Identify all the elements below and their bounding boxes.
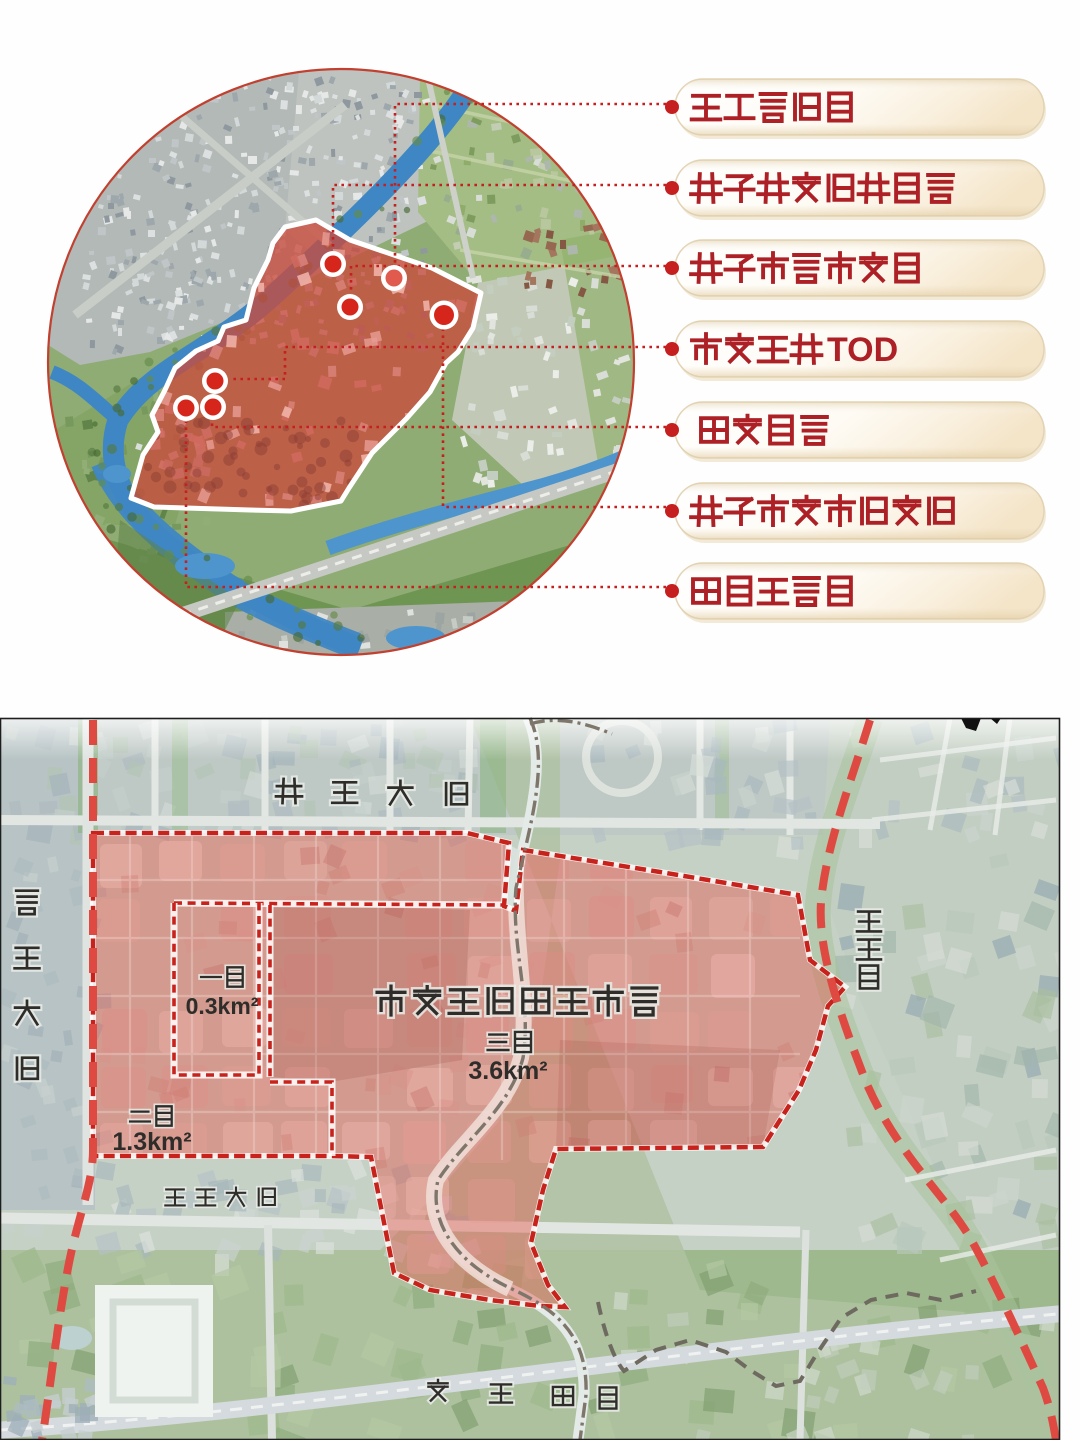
svg-text:1.3km²: 1.3km² [112,1128,191,1156]
svg-text:0.3km²: 0.3km² [186,993,259,1019]
svg-text:TOD: TOD [827,331,898,369]
svg-text:3.6km²: 3.6km² [468,1057,547,1085]
